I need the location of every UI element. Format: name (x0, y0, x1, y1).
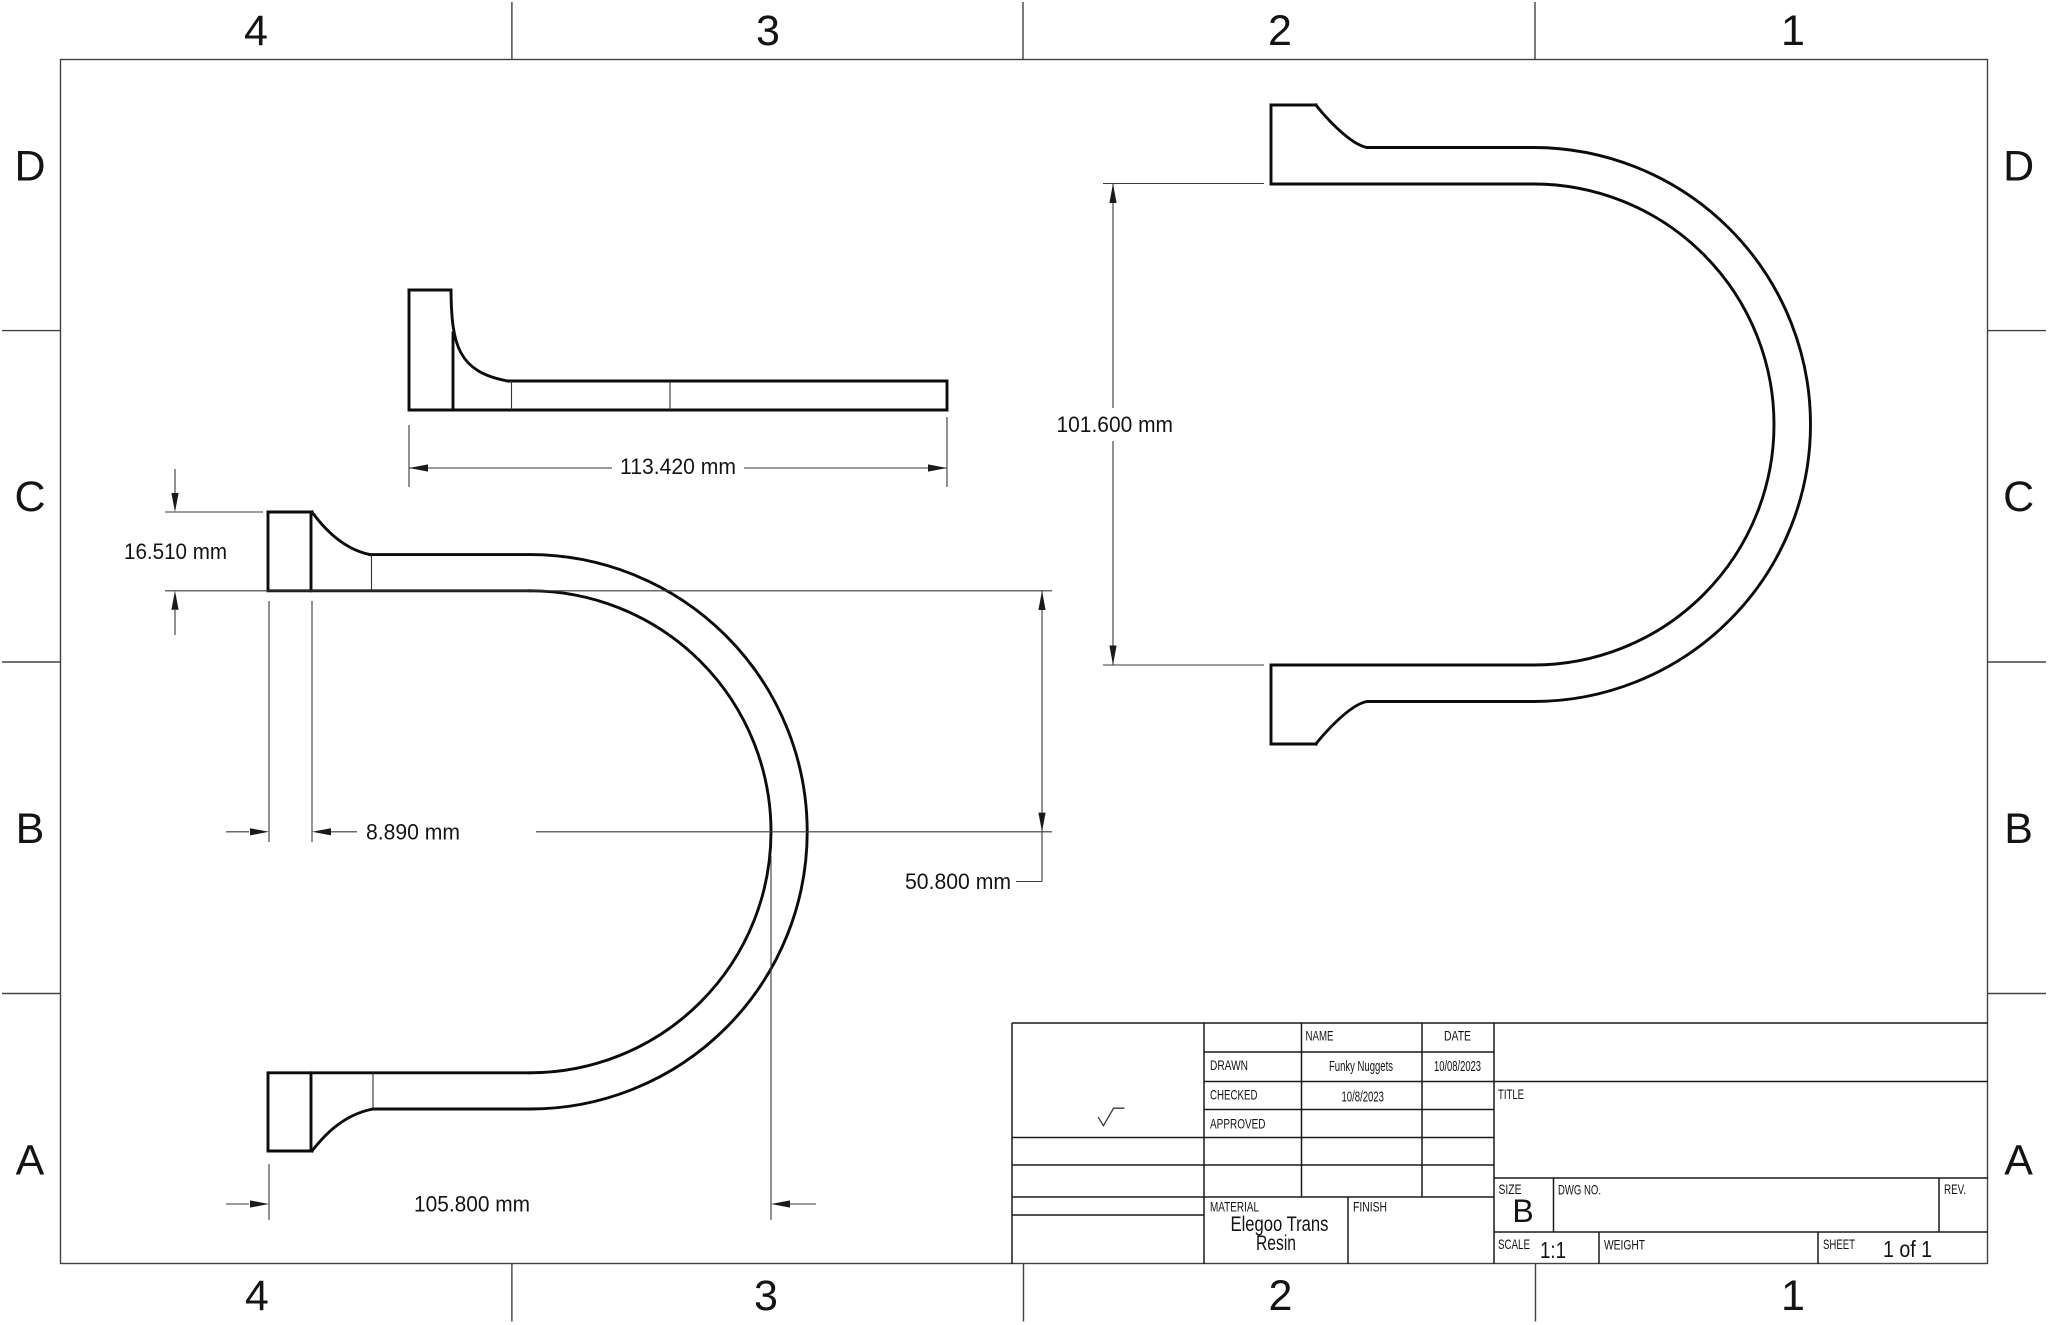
svg-text:C: C (14, 473, 45, 521)
svg-text:FINISH: FINISH (1353, 1199, 1387, 1215)
svg-text:C: C (2003, 473, 2034, 521)
svg-text:105.800 mm: 105.800 mm (414, 1192, 530, 1217)
svg-text:SCALE: SCALE (1498, 1236, 1530, 1252)
svg-text:WEIGHT: WEIGHT (1604, 1237, 1645, 1253)
svg-text:NAME: NAME (1306, 1028, 1334, 1044)
svg-text:4: 4 (244, 7, 268, 55)
svg-text:50.800 mm: 50.800 mm (905, 869, 1011, 894)
svg-text:A: A (16, 1136, 45, 1184)
svg-text:A: A (2004, 1136, 2033, 1184)
svg-text:10/08/2023: 10/08/2023 (1434, 1059, 1481, 1075)
svg-text:2: 2 (1269, 1272, 1293, 1320)
svg-text:101.600 mm: 101.600 mm (1057, 412, 1174, 437)
svg-text:3: 3 (756, 7, 780, 55)
svg-text:B: B (16, 805, 45, 853)
svg-text:16.510 mm: 16.510 mm (124, 539, 227, 564)
svg-text:Resin: Resin (1256, 1232, 1296, 1255)
svg-text:DWG NO.: DWG NO. (1558, 1182, 1601, 1198)
svg-text:SHEET: SHEET (1823, 1236, 1855, 1252)
svg-text:DATE: DATE (1444, 1028, 1471, 1044)
svg-text:8.890 mm: 8.890 mm (366, 819, 460, 844)
svg-text:113.420 mm: 113.420 mm (620, 454, 736, 479)
svg-text:1 of 1: 1 of 1 (1883, 1236, 1932, 1262)
svg-text:1: 1 (1781, 7, 1805, 55)
svg-text:CHECKED: CHECKED (1210, 1087, 1258, 1103)
svg-text:B: B (1512, 1193, 1533, 1229)
svg-text:Funky Nuggets: Funky Nuggets (1329, 1059, 1393, 1075)
svg-text:TITLE: TITLE (1498, 1086, 1524, 1102)
svg-text:APPROVED: APPROVED (1210, 1116, 1266, 1132)
svg-text:2: 2 (1268, 7, 1292, 55)
svg-text:REV.: REV. (1944, 1181, 1966, 1197)
svg-text:D: D (14, 142, 45, 190)
svg-text:1:1: 1:1 (1540, 1237, 1566, 1263)
svg-text:DRAWN: DRAWN (1210, 1057, 1248, 1073)
svg-text:10/8/2023: 10/8/2023 (1342, 1090, 1385, 1106)
svg-text:1: 1 (1781, 1272, 1805, 1320)
svg-text:B: B (2004, 805, 2033, 853)
svg-text:4: 4 (245, 1272, 269, 1320)
svg-text:D: D (2003, 142, 2034, 190)
svg-text:3: 3 (754, 1272, 778, 1320)
